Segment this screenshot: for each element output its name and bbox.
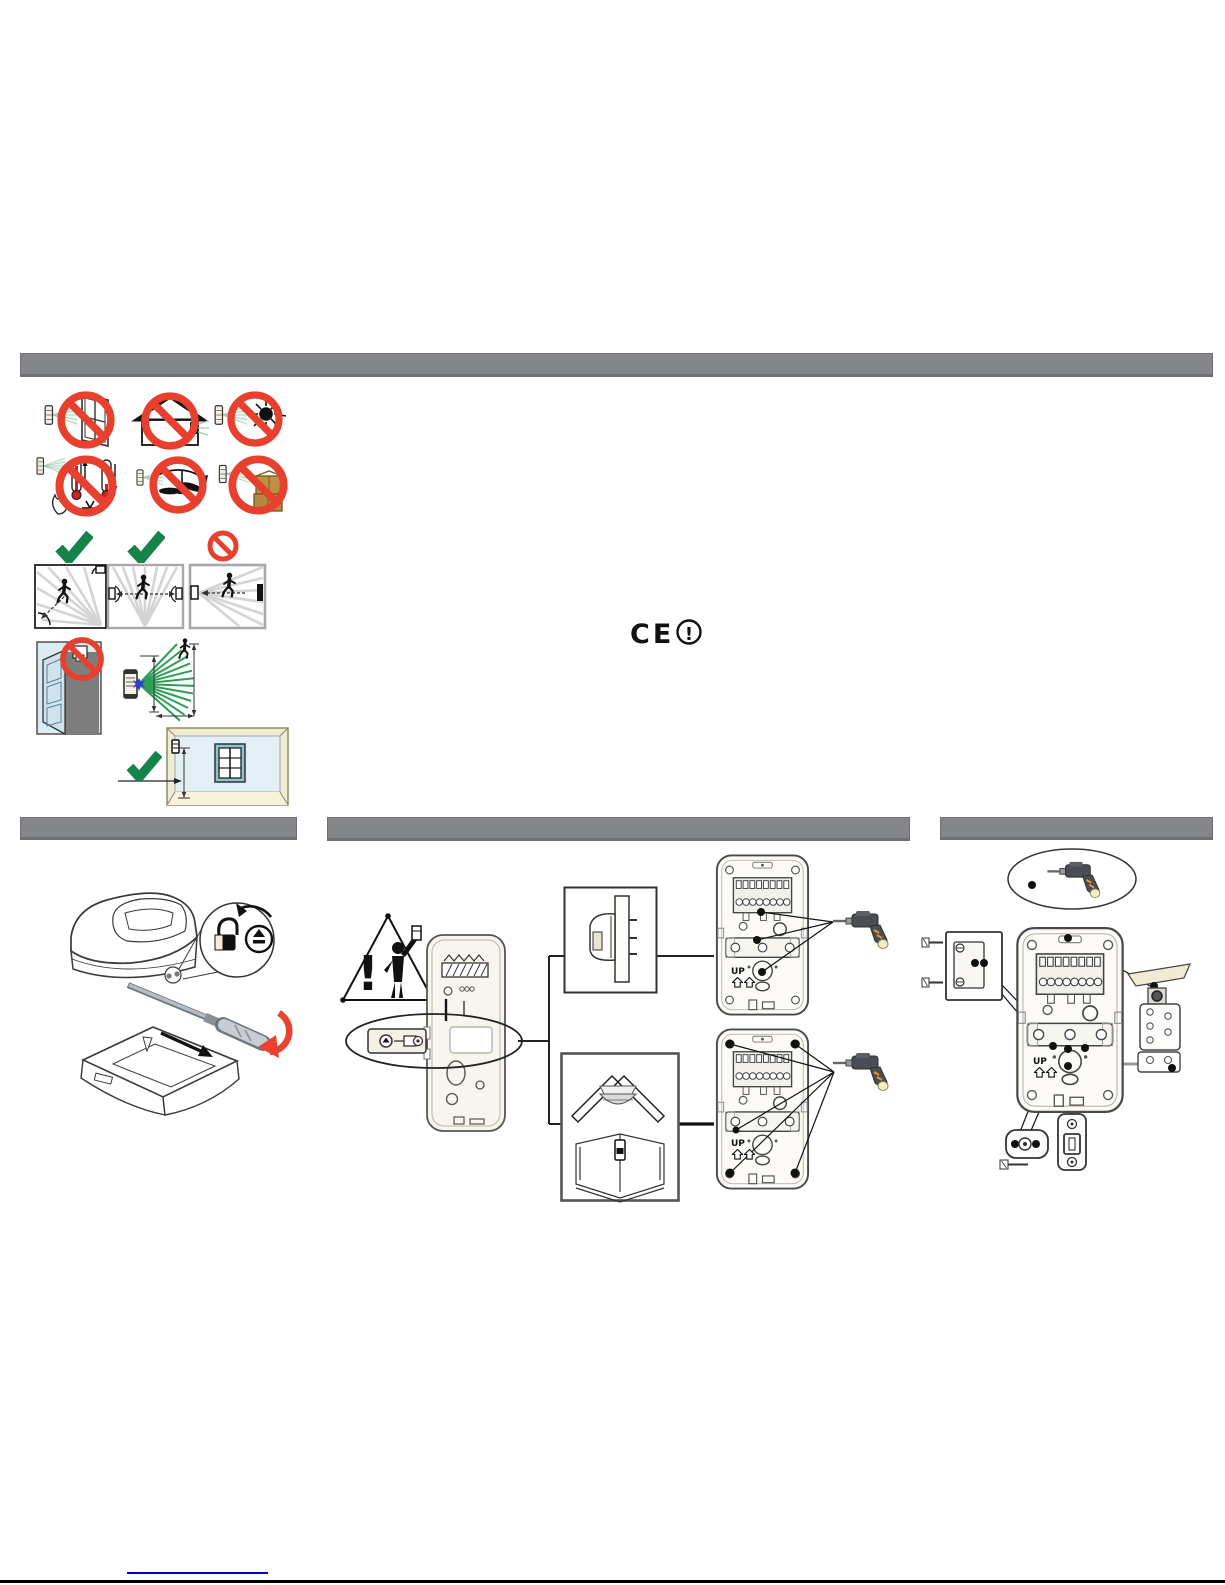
- drill-icon: [833, 908, 893, 950]
- option-corner-mount: [560, 1052, 680, 1202]
- bracket-wall-plate: [922, 930, 1010, 1008]
- window: [215, 744, 245, 782]
- ce-mark: CE !: [628, 613, 704, 653]
- panel-two-detectors-ok: [107, 564, 184, 629]
- diagram-open-housing: [55, 875, 300, 1150]
- check-icon: [127, 531, 165, 563]
- footer-link-underline[interactable]: [127, 1572, 268, 1574]
- detector-housing-slide-cover: [81, 1027, 239, 1115]
- drill-hole-dot: [1028, 881, 1036, 889]
- detector-icon: [172, 740, 179, 753]
- icon-no-outdoor-installation: [130, 390, 210, 452]
- icon-no-heat-or-cold-sources: [36, 452, 132, 522]
- section-bar-bracket-mounting: [940, 817, 1213, 840]
- ce-letters: CE: [630, 619, 674, 650]
- detector-housing-closed: [71, 893, 197, 977]
- page-bottom-edge: [0, 1580, 1225, 1583]
- screw-icon: [922, 978, 943, 987]
- check-icon: [55, 531, 93, 563]
- up-text: UP: [1033, 1057, 1047, 1067]
- up-orientation-label: UP: [1032, 1054, 1060, 1080]
- walking-person-icon: [179, 638, 189, 657]
- check-icon: [130, 754, 159, 777]
- drill-pilot-hole-oval: [1005, 845, 1140, 913]
- up-text: UP: [731, 1139, 745, 1149]
- ce-alert-exclamation: !: [685, 624, 693, 645]
- up-text: UP: [731, 967, 745, 977]
- icon-no-obstructions: [218, 454, 292, 520]
- manual-page: CE !: [0, 0, 1225, 1585]
- icon-no-aiming-at-window: [44, 388, 118, 456]
- unlock-rotate-inset: [200, 903, 274, 977]
- up-orientation-label: UP: [730, 1136, 758, 1162]
- bracket-base-holes: [1014, 924, 1126, 1116]
- swivel-bracket: [1128, 958, 1194, 1074]
- drill-icon: [833, 1050, 893, 1092]
- icon-no-fans-moving-objects: [136, 454, 216, 520]
- ball-joint-pieces: [998, 1112, 1102, 1176]
- knockout-detail-oval: [342, 1010, 526, 1072]
- section-bar-open-housing: [20, 817, 297, 840]
- icon-no-direct-sunlight: [214, 388, 288, 456]
- detector-icon: [124, 670, 137, 698]
- diagram-detection-fan: [120, 638, 210, 722]
- diagram-room-mounting-height: [112, 724, 294, 810]
- panel-head-on-movement-bad: [189, 564, 266, 629]
- screw-icon: [1000, 1160, 1028, 1169]
- warning-exclamation: !: [357, 946, 379, 1002]
- up-orientation-label: UP: [730, 964, 758, 990]
- option-flat-wall-mount: [563, 886, 658, 994]
- icon-do-not-mount-above-door: [35, 636, 107, 738]
- prohibition-icon: [206, 529, 240, 563]
- screw-icon: [922, 938, 943, 947]
- installer-warning-triangle: !: [338, 910, 438, 1010]
- panel-crosswise-movement-ok: [34, 564, 107, 629]
- section-bar-top: [20, 353, 1213, 377]
- section-bar-mounting: [327, 817, 910, 841]
